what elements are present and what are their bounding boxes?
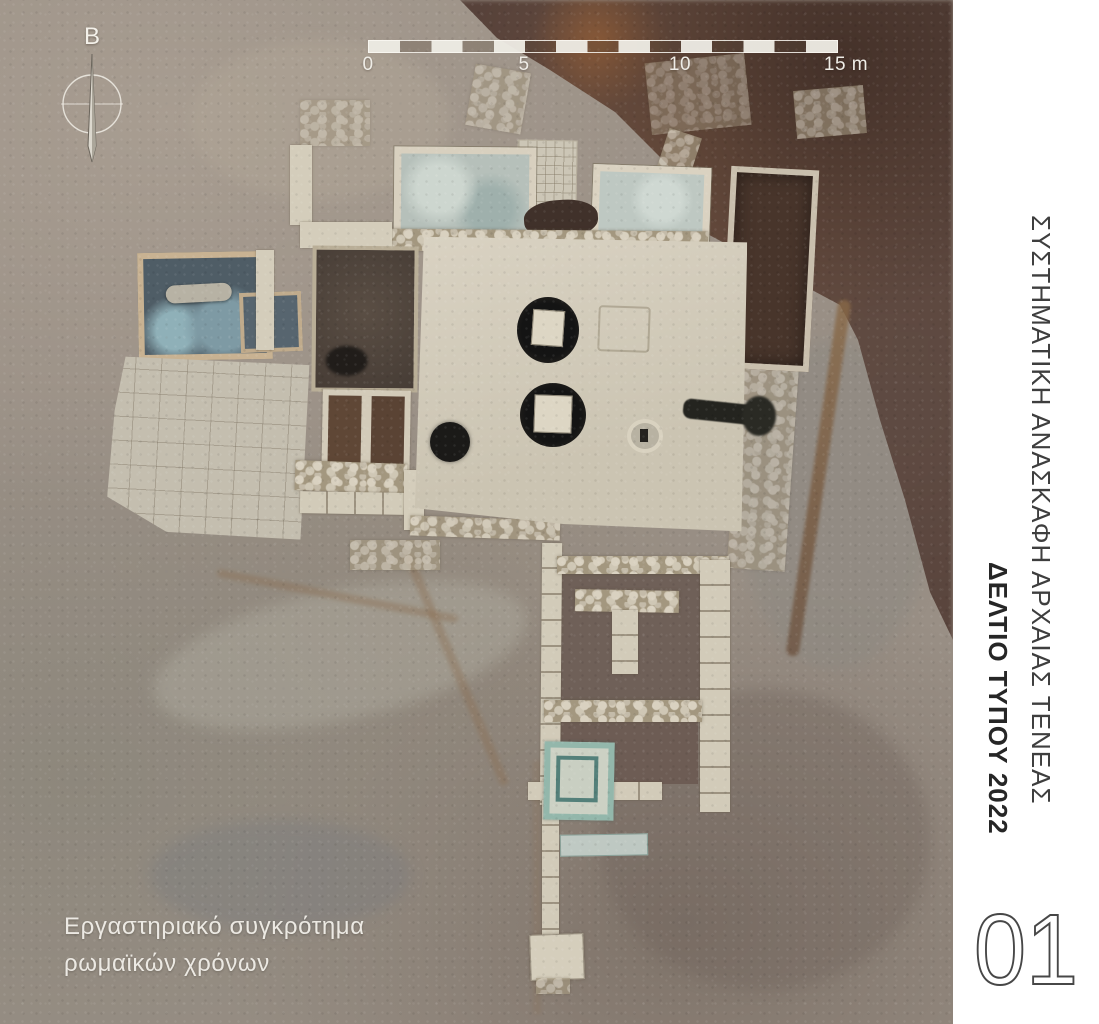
- vat-square-rim: [533, 394, 572, 433]
- rubble-patch: [350, 540, 440, 570]
- document-title-vertical: ΔΕΛΤΙΟ ΤΥΠΟΥ 2022: [982, 562, 1014, 835]
- north-arrow-icon: B: [58, 14, 128, 166]
- dark-earth-room: [311, 246, 418, 393]
- vat-square-rim: [531, 309, 565, 347]
- sidebar: ΣΥΣΤΗΜΑΤΙΚΗ ΑΝΑΣΚΑΦΗ ΑΡΧΑΙΑΣ ΤΕΝΕΑΣ ΔΕΛΤ…: [953, 0, 1099, 1024]
- round-vat-south: [520, 383, 586, 447]
- round-vat-north: [517, 297, 579, 363]
- scale-tick-15m: 15 m: [816, 54, 876, 76]
- wall-block-row: [300, 222, 392, 248]
- flagstone-paved-floor: [106, 356, 309, 539]
- wall-block-row-south: [300, 491, 404, 515]
- cross-wall-middle: [544, 700, 702, 722]
- wall-stub-north: [290, 145, 312, 225]
- plaster-work-floor: [415, 237, 748, 532]
- rubble-patch: [793, 85, 867, 139]
- scale-tick-0: 0: [348, 54, 388, 76]
- series-title-vertical: ΣΥΣΤΗΜΑΤΙΚΗ ΑΝΑΣΚΑΦΗ ΑΡΧΑΙΑΣ ΤΕΝΕΑΣ: [1024, 215, 1057, 805]
- caption-line-2: ρωμαϊκών χρόνων: [64, 945, 365, 982]
- rubble-patch: [300, 100, 370, 146]
- press-release-figure: B 0 5 10 15 m Εργαστηριακό συγκρότημα ρω…: [0, 0, 1099, 1024]
- basin-inner-rim: [556, 756, 599, 803]
- caption-line-1: Εργαστηριακό συγκρότημα: [64, 908, 365, 945]
- wall-south-complex-east: [700, 560, 730, 812]
- long-wall-south-continuation: [542, 800, 559, 938]
- turquoise-wall-blocks: [560, 833, 648, 857]
- issue-number-text: 01: [974, 894, 1078, 1002]
- issue-number: 01: [953, 892, 1099, 1002]
- small-ring-socket: [627, 419, 663, 453]
- rubble-below-wall-end: [536, 978, 570, 994]
- column-drum: [165, 282, 232, 303]
- wall-terminal-block: [529, 933, 585, 981]
- wall-between-pools: [256, 250, 274, 350]
- burnt-blob: [742, 396, 776, 436]
- circular-hole: [430, 422, 470, 462]
- wall-cobble-band: [295, 460, 408, 494]
- scale-bar: [368, 40, 838, 53]
- faint-square-outline: [597, 305, 651, 353]
- photo-caption: Εργαστηριακό συγκρότημα ρωμαϊκών χρόνων: [64, 908, 365, 982]
- north-label: B: [84, 23, 100, 50]
- scale-tick-10: 10: [660, 54, 700, 76]
- hydraulic-plaster-basin: [543, 741, 614, 820]
- burnt-patch: [326, 346, 368, 376]
- scale-tick-5: 5: [504, 54, 544, 76]
- aerial-photo-excavation: B 0 5 10 15 m Εργαστηριακό συγκρότημα ρω…: [0, 0, 953, 1024]
- interior-wall-stub: [612, 610, 638, 674]
- socket-hole: [640, 429, 648, 442]
